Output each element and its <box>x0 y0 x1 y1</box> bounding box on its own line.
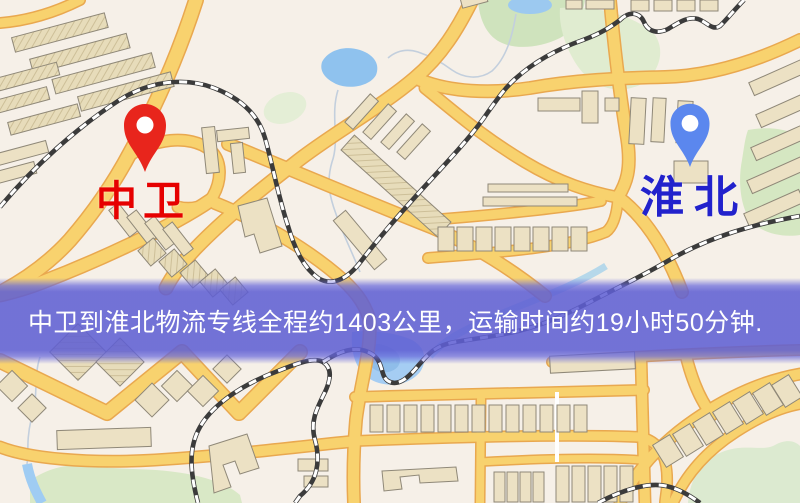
origin-label: 中卫 <box>96 181 190 222</box>
destination-label: 淮北 <box>640 176 748 220</box>
route-info-text: 中卫到淮北物流专线全程约1403公里，运输时间约19小时50分钟. <box>0 303 763 339</box>
basemap <box>0 0 800 503</box>
route-info-banner: 中卫到淮北物流专线全程约1403公里，运输时间约19小时50分钟. <box>0 278 800 364</box>
logistics-route-map: 中卫 淮北 中卫到淮北物流专线全程约1403公里，运输时间约19小时50分钟. <box>0 0 800 503</box>
